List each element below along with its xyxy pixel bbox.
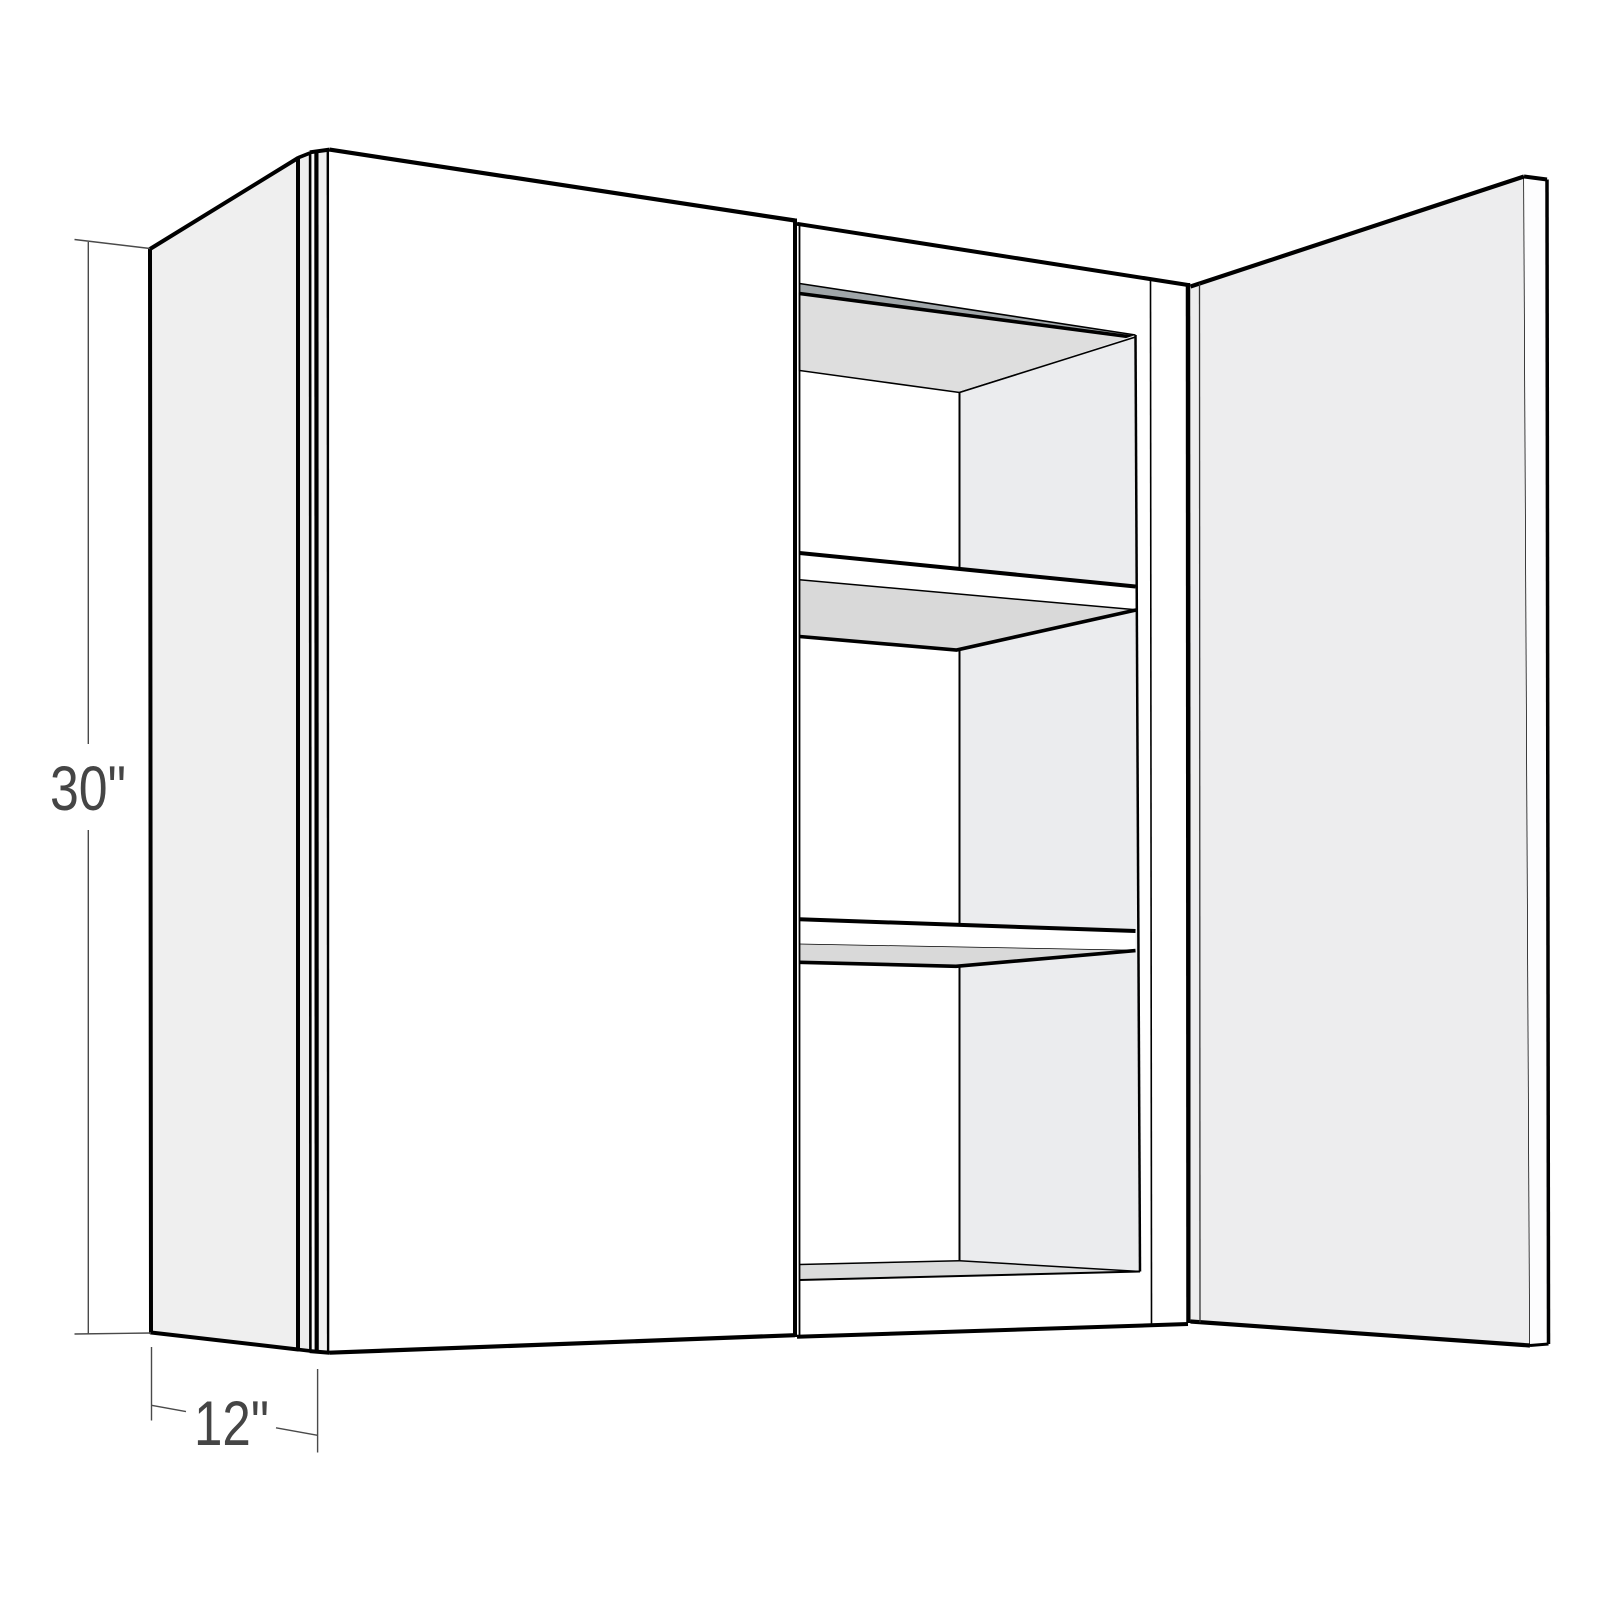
svg-text:12": 12": [194, 1389, 269, 1459]
svg-text:30": 30": [50, 754, 126, 824]
